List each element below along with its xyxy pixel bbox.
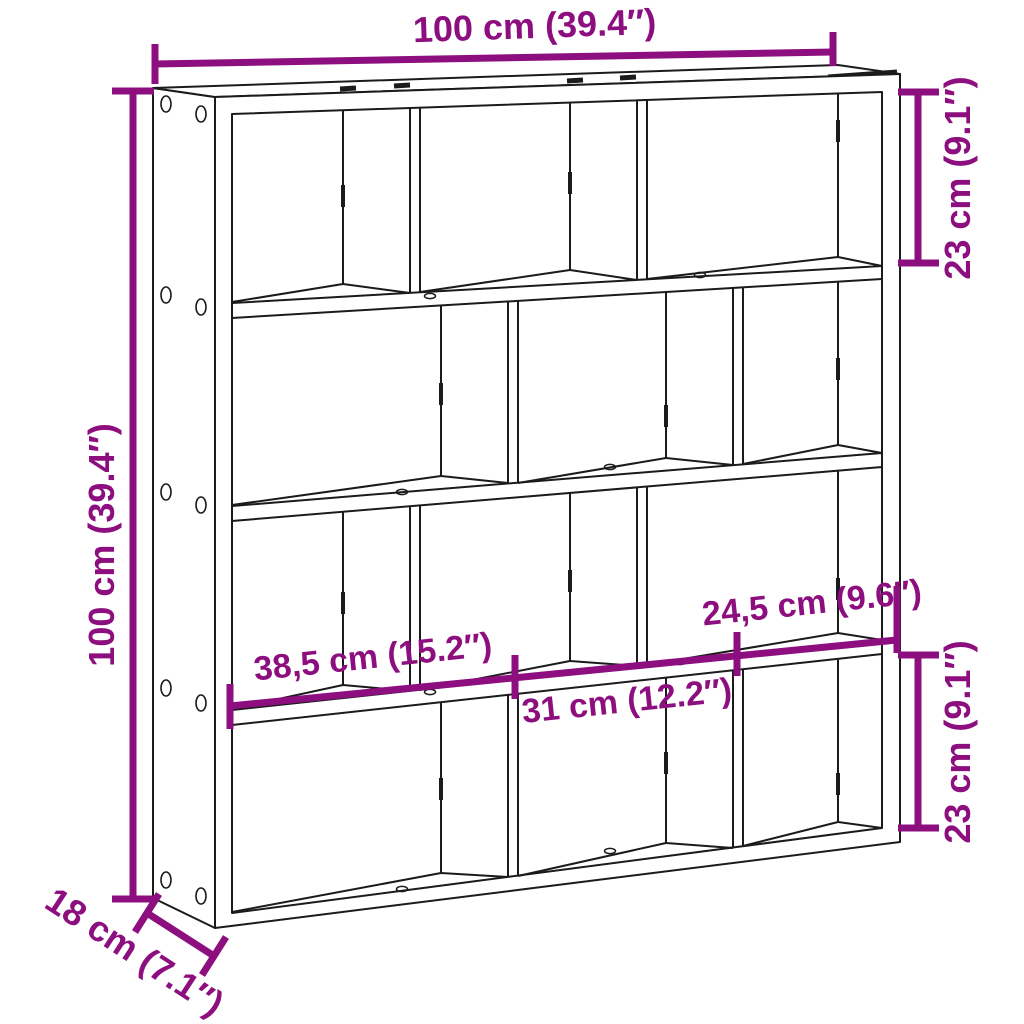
bottom-compartment-height-dimension: 23 cm (9.1″) (898, 640, 978, 843)
front-frame-outer (215, 74, 900, 928)
top-compartment-height-dimension: 23 cm (9.1″) (898, 76, 978, 279)
overall-width-dim-label: 100 cm (39.4″) (412, 1, 657, 50)
shelf-diagram-svg: 100 cm (39.4″) 100 cm (39.4″) 23 cm (9.1… (0, 0, 1024, 1024)
dimension-diagram: 100 cm (39.4″) 100 cm (39.4″) 23 cm (9.1… (0, 0, 1024, 1024)
overall-height-dimension: 100 cm (39.4″) (81, 91, 154, 899)
top-compartment-height-dim-label: 23 cm (9.1″) (937, 76, 978, 279)
bottom-compartment-height-dim-label: 23 cm (9.1″) (937, 640, 978, 843)
overall-height-dim-label: 100 cm (39.4″) (81, 423, 122, 666)
shelf-unit-drawing (153, 65, 900, 928)
